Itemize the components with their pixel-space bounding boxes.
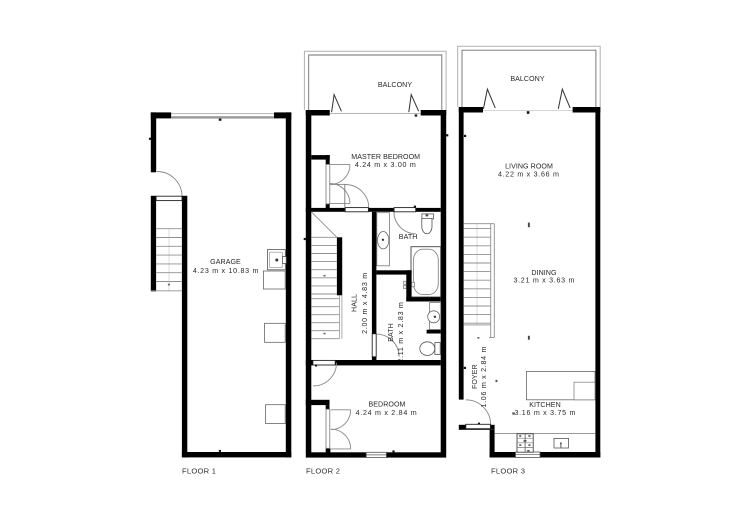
svg-text:BEDROOM: BEDROOM [368, 401, 405, 409]
svg-text:HALL: HALL [351, 294, 359, 312]
svg-text:LIVING ROOM: LIVING ROOM [505, 162, 553, 170]
svg-text:3.16 m x 3.75 m: 3.16 m x 3.75 m [514, 409, 576, 417]
svg-text:MASTER BEDROOM: MASTER BEDROOM [351, 153, 420, 161]
svg-text:BATH: BATH [387, 323, 395, 342]
svg-text:2.11 m x 2.83 m: 2.11 m x 2.83 m [397, 301, 405, 362]
svg-text:4.24 m x 3.00 m: 4.24 m x 3.00 m [355, 161, 417, 169]
svg-text:4.22 m x 3.66 m: 4.22 m x 3.66 m [498, 171, 560, 179]
svg-text:BATH: BATH [399, 233, 418, 241]
svg-text:4.24 m x 2.84 m: 4.24 m x 2.84 m [356, 409, 418, 417]
svg-text:3.21 m x 3.63 m: 3.21 m x 3.63 m [513, 277, 575, 285]
svg-text:FLOOR 1: FLOOR 1 [182, 466, 216, 475]
svg-text:BALCONY: BALCONY [378, 81, 412, 89]
svg-text:4.23 m x 10.83 m: 4.23 m x 10.83 m [193, 267, 259, 275]
svg-text:2.00 m x 4.83 m: 2.00 m x 4.83 m [361, 272, 369, 334]
svg-text:KITCHEN: KITCHEN [529, 401, 561, 409]
svg-text:FLOOR 2: FLOOR 2 [306, 467, 340, 476]
svg-text:BALCONY: BALCONY [510, 75, 544, 83]
svg-text:FLOOR 3: FLOOR 3 [491, 467, 525, 476]
svg-text:1.06 m x 2.84 m: 1.06 m x 2.84 m [480, 346, 488, 408]
svg-text:FOYER: FOYER [471, 364, 479, 389]
svg-text:GARAGE: GARAGE [210, 258, 241, 266]
